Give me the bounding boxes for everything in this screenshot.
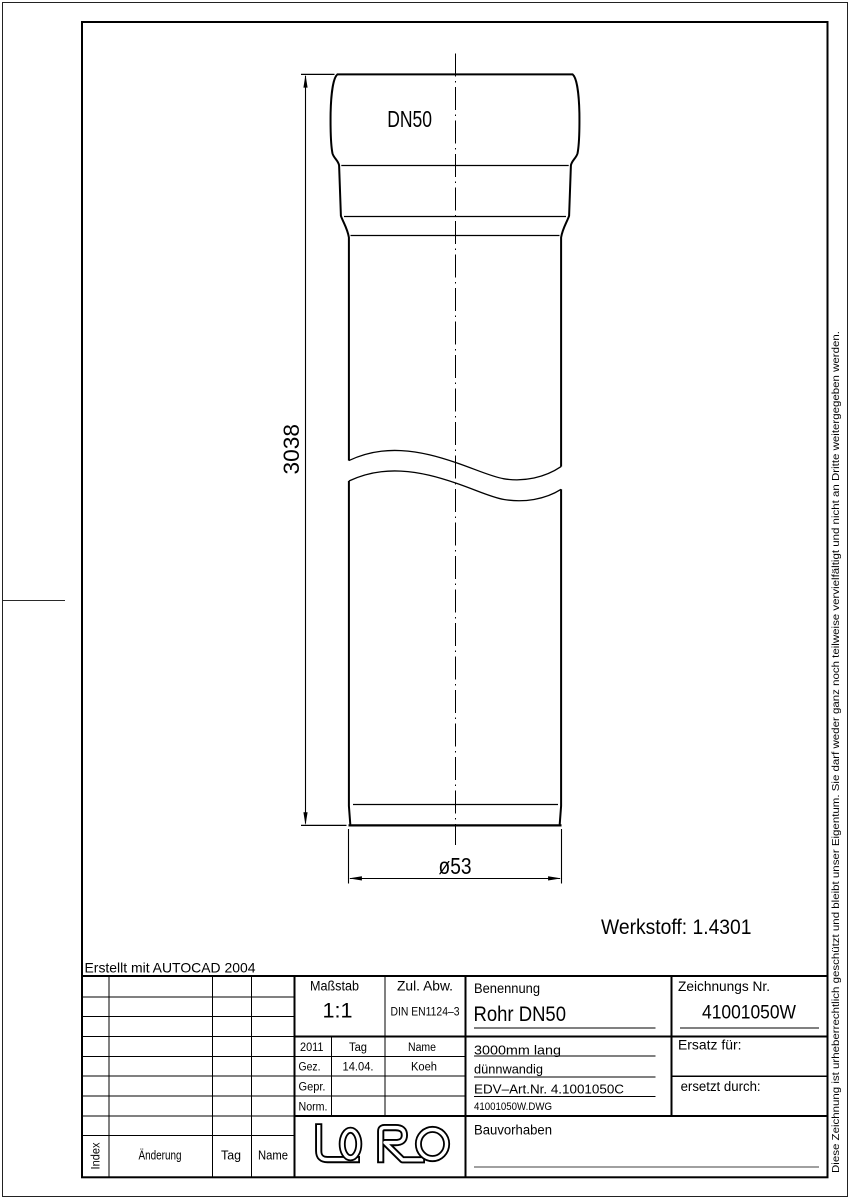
svg-text:EDV–Art.Nr. 4.1001050C: EDV–Art.Nr. 4.1001050C: [474, 1082, 624, 1097]
svg-text:2011: 2011: [300, 1042, 324, 1054]
svg-text:41001050W: 41001050W: [702, 1002, 797, 1024]
svg-text:Norm.: Norm.: [299, 1101, 328, 1113]
svg-text:Benennung: Benennung: [474, 981, 540, 996]
svg-text:Werkstoff: 1.4301: Werkstoff: 1.4301: [601, 916, 752, 939]
svg-text:Gepr.: Gepr.: [299, 1081, 326, 1093]
svg-text:Name: Name: [408, 1042, 436, 1054]
svg-text:Zul. Abw.: Zul. Abw.: [397, 979, 453, 994]
svg-text:DN50: DN50: [387, 106, 432, 132]
svg-text:Diese Zeichnung ist urheberrec: Diese Zeichnung ist urheberrechtlich ges…: [830, 331, 842, 1173]
svg-text:Maßstab: Maßstab: [310, 979, 359, 994]
svg-text:Erstellt mit AUTOCAD 2004: Erstellt mit AUTOCAD 2004: [85, 959, 256, 975]
svg-text:Änderung: Änderung: [139, 1148, 182, 1163]
svg-text:dünnwandig: dünnwandig: [474, 1062, 543, 1077]
svg-text:Zeichnungs Nr.: Zeichnungs Nr.: [678, 979, 770, 994]
svg-text:Index: Index: [91, 1142, 103, 1169]
svg-text:Gez.: Gez.: [299, 1062, 321, 1074]
svg-text:Ersatz für:: Ersatz für:: [678, 1038, 742, 1053]
svg-text:1:1: 1:1: [323, 999, 353, 1023]
svg-text:Tag: Tag: [349, 1042, 367, 1054]
svg-text:41001050W.DWG: 41001050W.DWG: [474, 1101, 552, 1113]
svg-text:3038: 3038: [279, 424, 304, 475]
svg-text:Koeh: Koeh: [411, 1062, 437, 1074]
svg-text:Name: Name: [258, 1148, 288, 1163]
svg-text:3000mm lang: 3000mm lang: [474, 1042, 561, 1057]
svg-text:Bauvorhaben: Bauvorhaben: [474, 1123, 552, 1138]
svg-text:ø53: ø53: [439, 853, 472, 879]
svg-text:14.04.: 14.04.: [343, 1062, 374, 1074]
svg-text:DIN EN1124–3: DIN EN1124–3: [391, 1006, 460, 1018]
svg-text:ersetzt durch:: ersetzt durch:: [681, 1079, 761, 1094]
svg-text:Tag: Tag: [221, 1148, 241, 1163]
svg-text:Rohr DN50: Rohr DN50: [474, 1003, 567, 1026]
